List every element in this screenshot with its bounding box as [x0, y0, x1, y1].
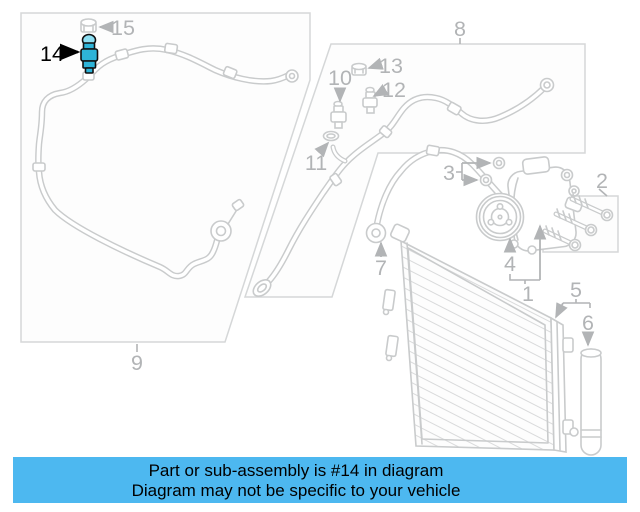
callout-label-1[interactable]: 1 — [522, 282, 534, 306]
callout-label-11[interactable]: 11 — [305, 151, 327, 175]
condenser-inlet — [390, 223, 410, 242]
condenser — [383, 223, 573, 452]
condenser-bracket — [383, 289, 396, 310]
o-ring-11 — [324, 132, 339, 141]
callout-label-4[interactable]: 4 — [504, 252, 516, 276]
parts-diagram-stage: 151481312101197324156 Part or sub-assemb… — [0, 0, 640, 512]
callout-label-2[interactable]: 2 — [596, 169, 608, 193]
callout-label-7[interactable]: 7 — [375, 256, 387, 280]
callout-3-bracket — [456, 163, 462, 180]
hose-collar — [115, 49, 129, 61]
o-rings-3 — [481, 158, 505, 186]
valve-cap-15 — [81, 19, 96, 32]
hose-collar — [165, 43, 178, 54]
callout-label-10[interactable]: 10 — [328, 66, 352, 90]
banner-line2: Diagram may not be specific to your vehi… — [13, 481, 579, 501]
valve-cap-13 — [352, 64, 366, 76]
callout-label-15[interactable]: 15 — [111, 16, 135, 40]
callout-label-9[interactable]: 9 — [131, 351, 143, 375]
callout-label-3[interactable]: 3 — [443, 161, 455, 185]
callout-label-8[interactable]: 8 — [454, 17, 466, 41]
condenser-bracket — [386, 335, 399, 356]
receiver-drier-6 — [570, 349, 601, 455]
callout-label-14[interactable]: 14 — [40, 42, 64, 66]
highlighted-part-14[interactable] — [81, 35, 98, 74]
callout-label-6[interactable]: 6 — [582, 311, 594, 335]
hose-collar — [426, 145, 439, 156]
callout-label-13[interactable]: 13 — [379, 54, 403, 78]
banner-line1: Part or sub-assembly is #14 in diagram — [13, 461, 579, 481]
hose-collar — [33, 163, 45, 171]
parts-diagram: 151481312101197324156 — [0, 0, 640, 512]
callout-label-12[interactable]: 12 — [382, 78, 406, 102]
highlight-banner: Part or sub-assembly is #14 in diagram D… — [13, 457, 627, 503]
callout-label-5[interactable]: 5 — [570, 278, 582, 302]
